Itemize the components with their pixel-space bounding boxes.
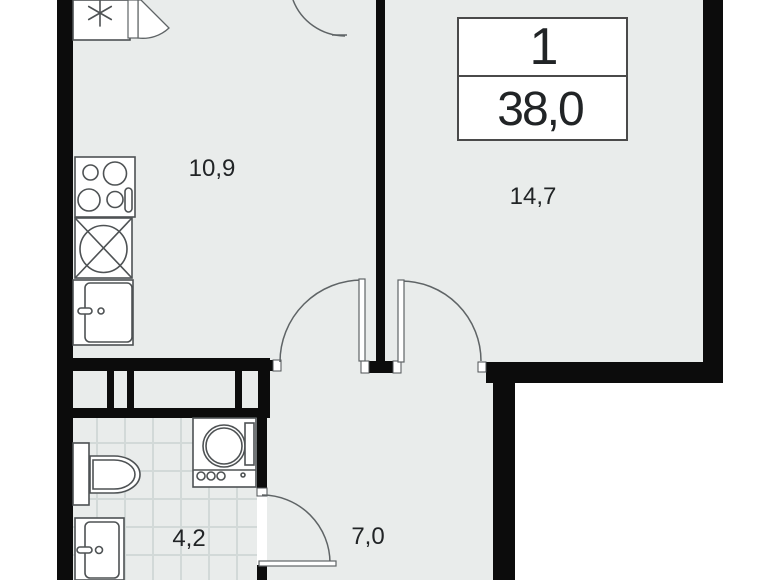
floor-plan-canvas: 1 38,0 10,9 14,7 4,2 7,0 — [0, 0, 780, 580]
room-door-opening-floor — [399, 362, 480, 373]
kitchen-bottom-wall — [57, 360, 273, 371]
unit-info-box: 1 38,0 — [458, 18, 627, 140]
outer-wall-right — [703, 0, 723, 383]
vent-shaft-cell — [114, 370, 127, 408]
divider-wall-foot — [369, 361, 393, 373]
bathroom-area-label: 4,2 — [172, 525, 205, 552]
burner — [107, 192, 123, 208]
door-jamb — [393, 361, 401, 373]
washer-knob — [241, 473, 245, 477]
drain — [98, 308, 104, 314]
washing-machine-icon — [193, 418, 256, 487]
washer-drum — [203, 425, 245, 467]
bathroom-right-wall-upper — [257, 418, 267, 488]
unit-number: 1 — [530, 18, 559, 76]
stove-handle — [125, 188, 132, 212]
washer-drawer — [245, 423, 254, 465]
door-leaf — [359, 279, 365, 361]
door-leaf — [128, 0, 138, 38]
vent-shaft-cell — [134, 370, 235, 408]
vent-shaft-cell — [73, 370, 107, 408]
fridge-body — [73, 0, 130, 40]
washer-knob — [197, 472, 205, 480]
door-jamb — [478, 362, 486, 372]
door-jamb — [361, 361, 369, 373]
faucet — [77, 547, 92, 553]
stove-icon — [75, 157, 135, 217]
burner — [78, 189, 100, 211]
room-bottom-wall — [486, 362, 723, 383]
fridge-icon — [73, 0, 130, 40]
hallway-right-wall — [493, 383, 515, 580]
toilet-bowl — [90, 456, 140, 493]
cabinet-sink-icon — [73, 280, 133, 345]
door-leaf — [398, 280, 404, 362]
kitchen-area-label: 10,9 — [189, 155, 236, 182]
faucet — [78, 308, 92, 314]
burner — [104, 162, 127, 185]
burner — [83, 165, 98, 180]
kitchen-room-divider-wall — [376, 0, 385, 362]
washbasin-icon — [75, 518, 124, 580]
kitchen-sink-icon — [75, 218, 132, 278]
washer-knob — [207, 472, 215, 480]
outer-wall-left — [57, 0, 73, 580]
total-area: 38,0 — [497, 83, 583, 136]
door-leaf — [259, 561, 336, 566]
floor-plan: 1 38,0 10,9 14,7 4,2 7,0 — [0, 0, 780, 580]
washer-knob — [217, 472, 225, 480]
toilet-tank — [73, 443, 89, 505]
hallway-area-label: 7,0 — [351, 523, 384, 550]
vent-shaft-cell — [242, 370, 258, 408]
kitchen-door-opening-floor — [279, 360, 361, 372]
room-area-label: 14,7 — [510, 183, 557, 210]
bathroom-right-wall-lower — [257, 565, 267, 580]
drain — [96, 547, 103, 554]
